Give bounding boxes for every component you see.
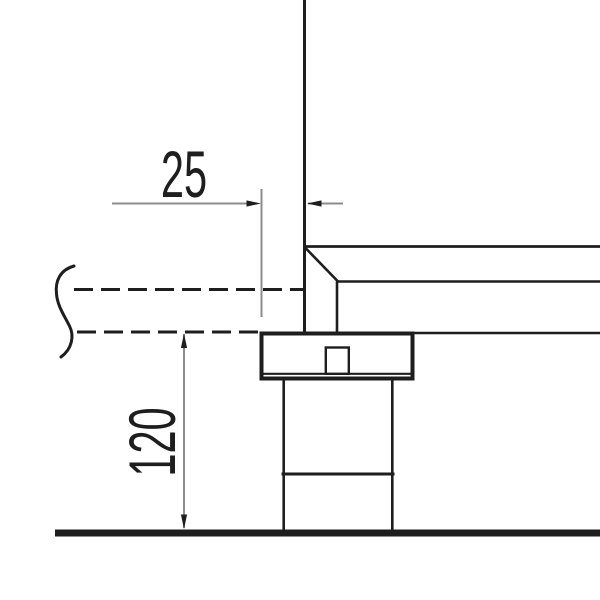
dim-25-arrow-right	[307, 200, 322, 206]
dim-120-arrow-top	[181, 334, 187, 349]
clip-fastener	[326, 348, 349, 374]
dimension-120: 120	[115, 334, 189, 530]
joist-profile	[262, 334, 413, 379]
pedestal	[282, 380, 395, 530]
deck-boards	[303, 247, 600, 334]
technical-drawing: 25 120	[0, 0, 600, 600]
break-line-symbol	[56, 266, 74, 357]
dim-25-label: 25	[161, 137, 207, 211]
dim-25-arrow-left	[247, 200, 262, 206]
section-detail-svg: 25 120	[0, 0, 600, 600]
fascia-chamfer-line	[306, 248, 339, 282]
fascia-board	[305, 0, 339, 334]
dim-120-arrow-bottom	[181, 515, 187, 530]
dim-120-label: 120	[115, 407, 189, 476]
